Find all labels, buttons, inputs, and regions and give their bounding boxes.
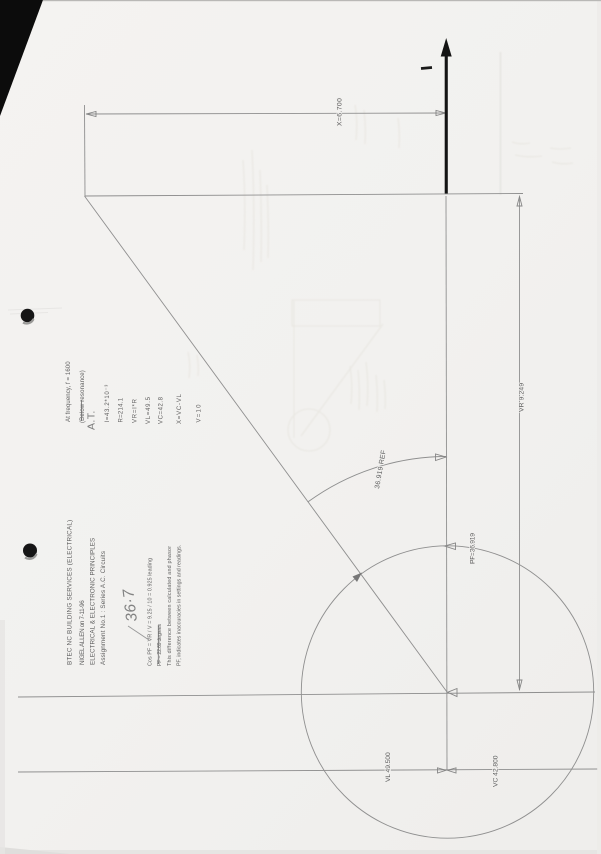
svg-text:X=6.700: X=6.700 [337, 98, 344, 126]
svg-text:PF, indicates inaccuracies in: PF, indicates inaccuracies in settings a… [177, 545, 183, 666]
svg-text:VR=I*R: VR=I*R [133, 398, 139, 423]
svg-text:PF = 22.69 degrees: PF = 22.69 degrees [157, 624, 163, 666]
svg-text:R=214.1: R=214.1 [119, 397, 125, 422]
svg-text:Cos PF = VR / V = 9.25 / 10 =: Cos PF = VR / V = 9.25 / 10 = 0.925 lead… [148, 558, 154, 666]
svg-text:NIGEL ALLEN on 7-11-96: NIGEL ALLEN on 7-11-96 [79, 600, 86, 665]
svg-text:Assignment No.1 : Series A.C.: Assignment No.1 : Series A.C. Circuits [100, 551, 107, 665]
svg-text:VL 49.500: VL 49.500 [385, 752, 392, 782]
svg-text:ELECTRICAL & ELECTRONIC PRINCI: ELECTRICAL & ELECTRONIC PRINCIPLES [90, 538, 97, 665]
svg-text:VC=42.8: VC=42.8 [159, 396, 165, 424]
svg-text:VC 42.800: VC 42.800 [493, 755, 500, 787]
svg-text:PF=36.919: PF=36.919 [470, 533, 477, 564]
svg-text:VR 9.249: VR 9.249 [519, 383, 526, 412]
svg-text:A.T.: A.T. [86, 410, 98, 430]
svg-text:I=43.2*10⁻³: I=43.2*10⁻³ [105, 385, 111, 423]
svg-text:This difference between calcul: This difference between calculated and p… [167, 546, 173, 666]
svg-text:BTEC NC BUILDING SERVICES (ELE: BTEC NC BUILDING SERVICES (ELECTRICAL) [67, 520, 74, 665]
svg-text:At frequency, f = 1600: At frequency, f = 1600 [66, 361, 72, 422]
